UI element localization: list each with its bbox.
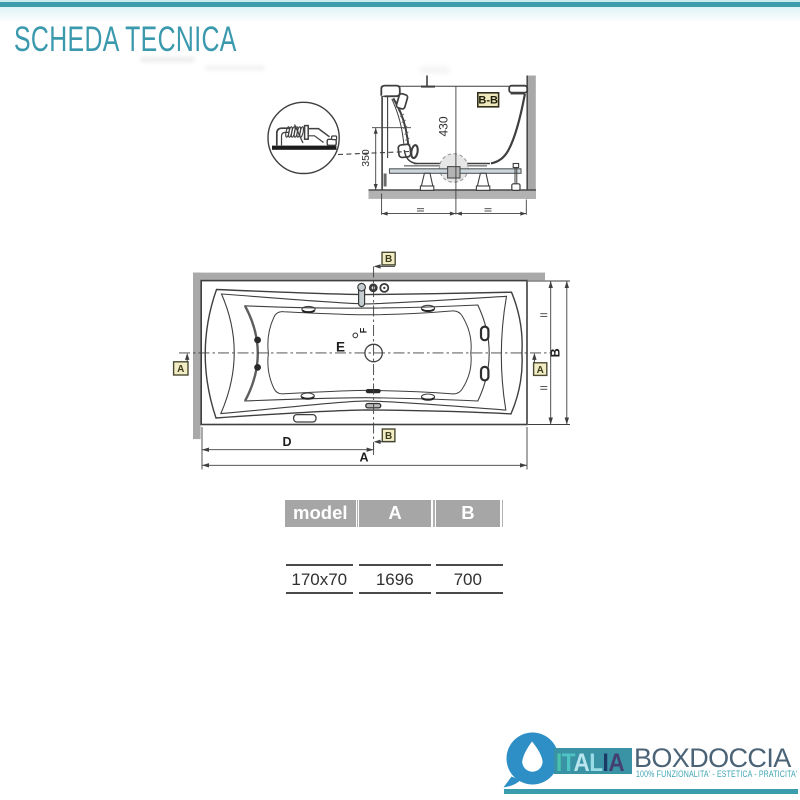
svg-text:B: B — [549, 348, 563, 357]
svg-text:A: A — [359, 451, 368, 465]
svg-text:D: D — [282, 435, 291, 449]
svg-text:B: B — [385, 431, 392, 442]
svg-text:350: 350 — [360, 149, 372, 167]
svg-text:A: A — [177, 364, 184, 375]
svg-text:A: A — [537, 365, 544, 376]
svg-text:E: E — [336, 340, 345, 355]
svg-text:B-B: B-B — [478, 95, 498, 107]
svg-text:B: B — [385, 254, 392, 265]
svg-text:430: 430 — [437, 116, 451, 136]
svg-text:F: F — [359, 327, 369, 333]
